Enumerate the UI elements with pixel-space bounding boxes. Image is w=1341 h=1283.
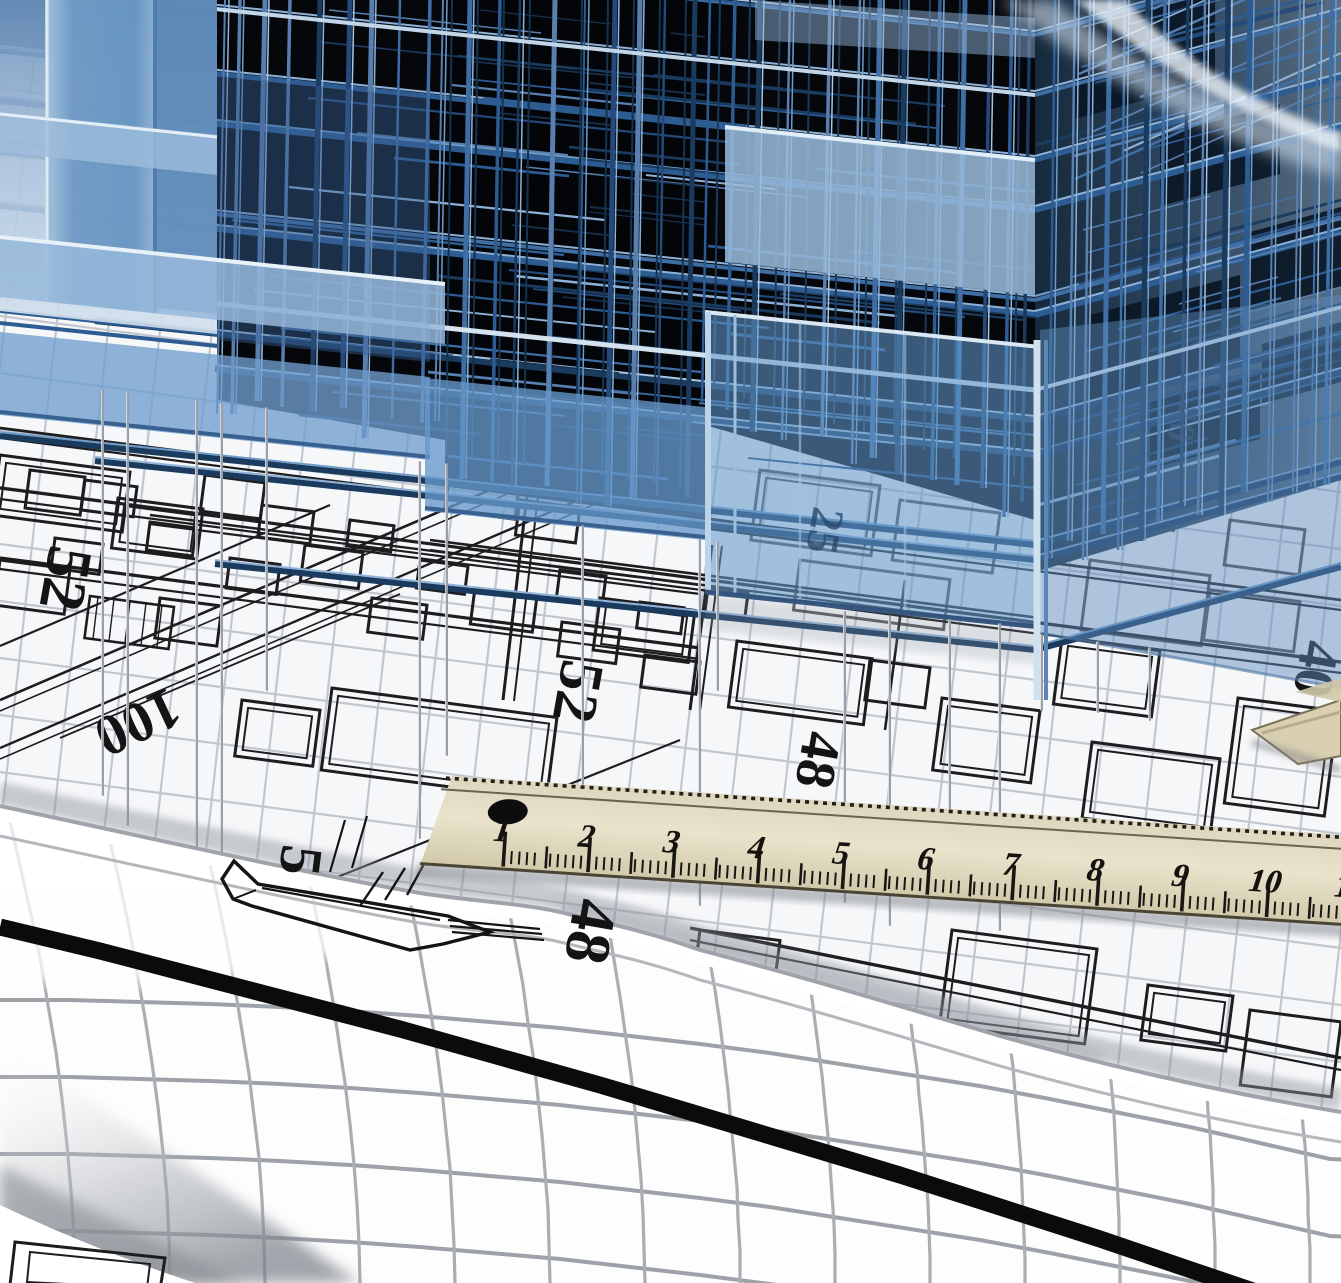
svg-text:48: 48 — [782, 727, 853, 793]
svg-text:25: 25 — [796, 504, 854, 558]
svg-text:48: 48 — [551, 894, 632, 969]
svg-text:40: 40 — [1158, 399, 1209, 446]
svg-text:52: 52 — [539, 655, 617, 728]
svg-text:52: 52 — [26, 541, 107, 616]
